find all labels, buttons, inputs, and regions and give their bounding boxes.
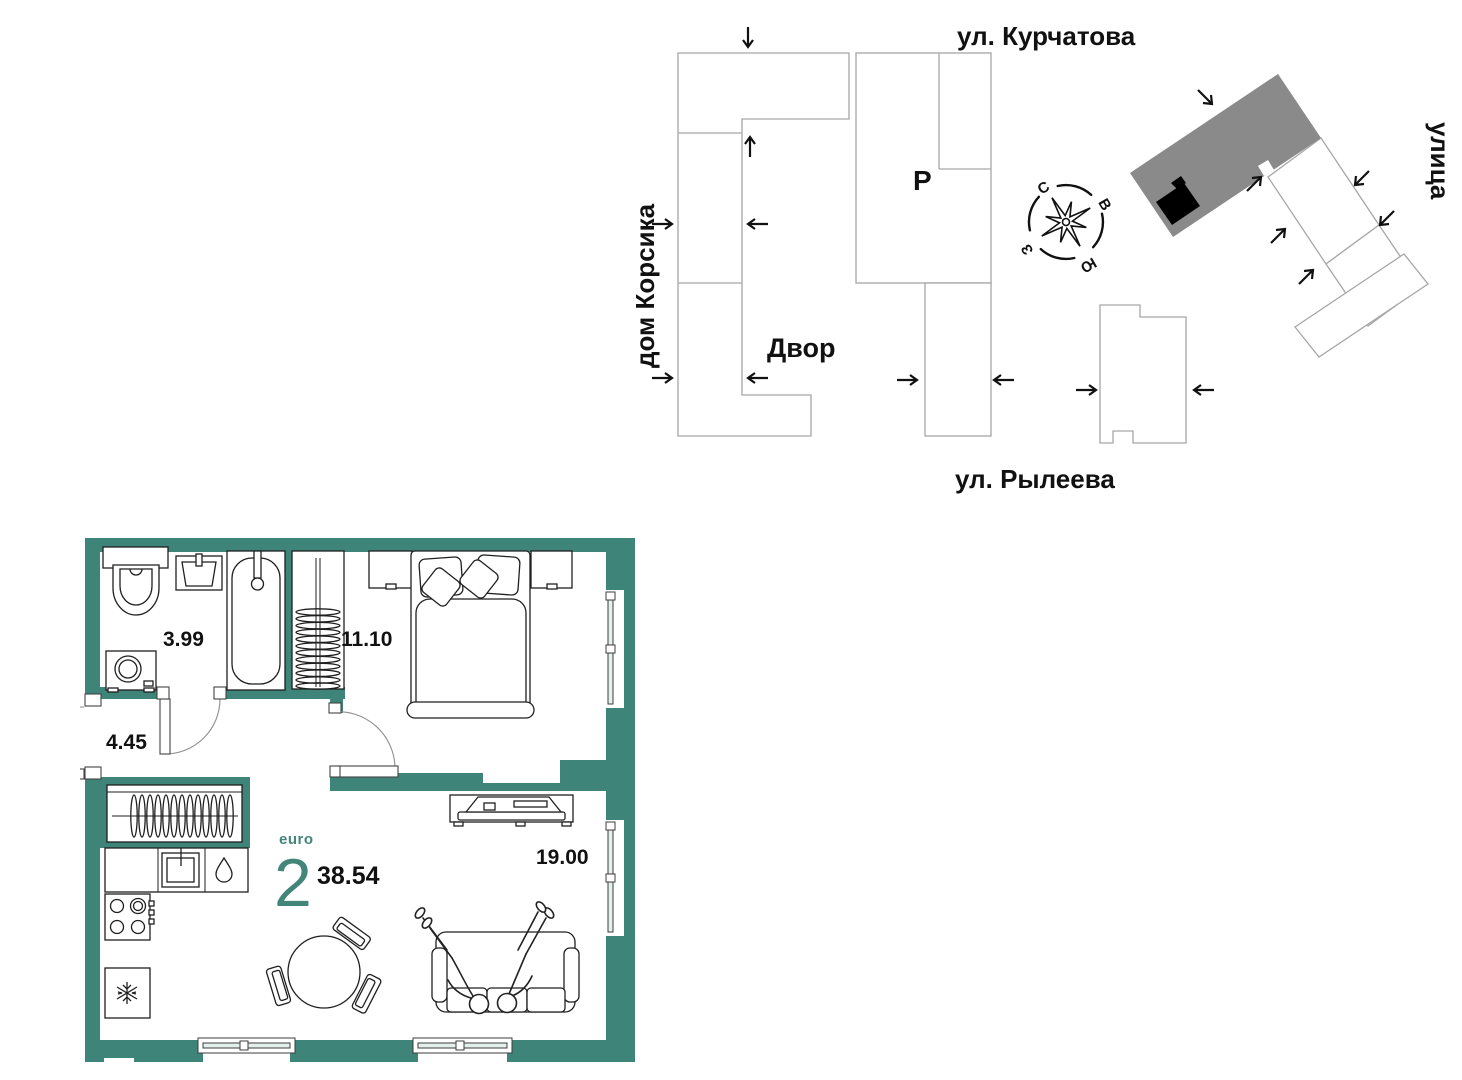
wardrobe-icon (292, 551, 344, 689)
toilet-icon (103, 547, 168, 615)
apartment-floor-plan: 3.99 11.10 4.45 19.00 euro 2 38.54 (80, 533, 636, 1080)
compass-east: В (1094, 196, 1114, 214)
parking-building (856, 53, 991, 436)
entrance-arrow (1271, 229, 1285, 243)
kitchen-sink-icon (162, 848, 199, 887)
hallway-area-label: 4.45 (106, 731, 147, 754)
building-left-label: дом Корсика (630, 203, 660, 368)
double-bed-icon (407, 551, 534, 718)
site-plan: С В З Ю ул. Курчатова ул. Рылеева дом Ко… (620, 8, 1462, 500)
street-bottom-label: ул. Рылеева (955, 464, 1115, 494)
fridge-icon (105, 968, 150, 1018)
compass-west: З (1018, 241, 1037, 258)
entrance-door (80, 694, 101, 779)
entrance-arrow (1380, 211, 1394, 225)
parking-label: Р (913, 165, 932, 196)
bathroom-door (157, 687, 226, 754)
tv-stand-icon (450, 795, 573, 826)
entrance-arrow (748, 373, 768, 383)
entrance-arrow (897, 375, 917, 385)
compass-north: С (1035, 178, 1053, 198)
compass-rose-icon: С В З Ю (1018, 178, 1115, 276)
living-window-bottom-2 (413, 1038, 512, 1053)
bathroom-area-label: 3.99 (163, 628, 204, 651)
nightstand-left (369, 551, 412, 589)
compass-south: Ю (1077, 254, 1099, 276)
entrance-arrow (743, 27, 753, 47)
rooms-count-label: 2 (274, 845, 312, 921)
entrance-arrow (1194, 385, 1214, 395)
courtyard-label: Двор (767, 333, 835, 363)
dining-table-icon (288, 936, 360, 1008)
entrance-arrow (652, 373, 672, 383)
neighbor-building (1100, 305, 1186, 443)
entrance-arrow (1076, 385, 1096, 395)
coat-rack-icon (107, 785, 242, 842)
street-top-label: ул. Курчатова (957, 21, 1136, 51)
sink-icon (176, 554, 222, 590)
stove-icon (105, 894, 154, 940)
bedroom-area-label: 11.10 (341, 628, 392, 651)
entrance-arrow (748, 219, 768, 229)
floor-plan-page: С В З Ю ул. Курчатова ул. Рылеева дом Ко… (0, 0, 1462, 1080)
living-window-bottom-1 (198, 1038, 295, 1053)
kitchen-living-area-label: 19.00 (536, 846, 589, 869)
entrance-arrow (745, 137, 755, 157)
bathtub-icon (227, 551, 285, 690)
entrance-arrow (1355, 171, 1369, 185)
street-right-label: улица (1425, 122, 1455, 200)
entrance-arrow (994, 375, 1014, 385)
bedroom-door (329, 703, 398, 777)
street-buildings (1268, 138, 1428, 357)
total-area-label: 38.54 (317, 862, 380, 890)
entrance-arrow (1198, 90, 1212, 104)
entrance-arrow (1299, 270, 1313, 284)
nightstand-right (531, 551, 572, 589)
washing-machine-icon (106, 651, 156, 692)
